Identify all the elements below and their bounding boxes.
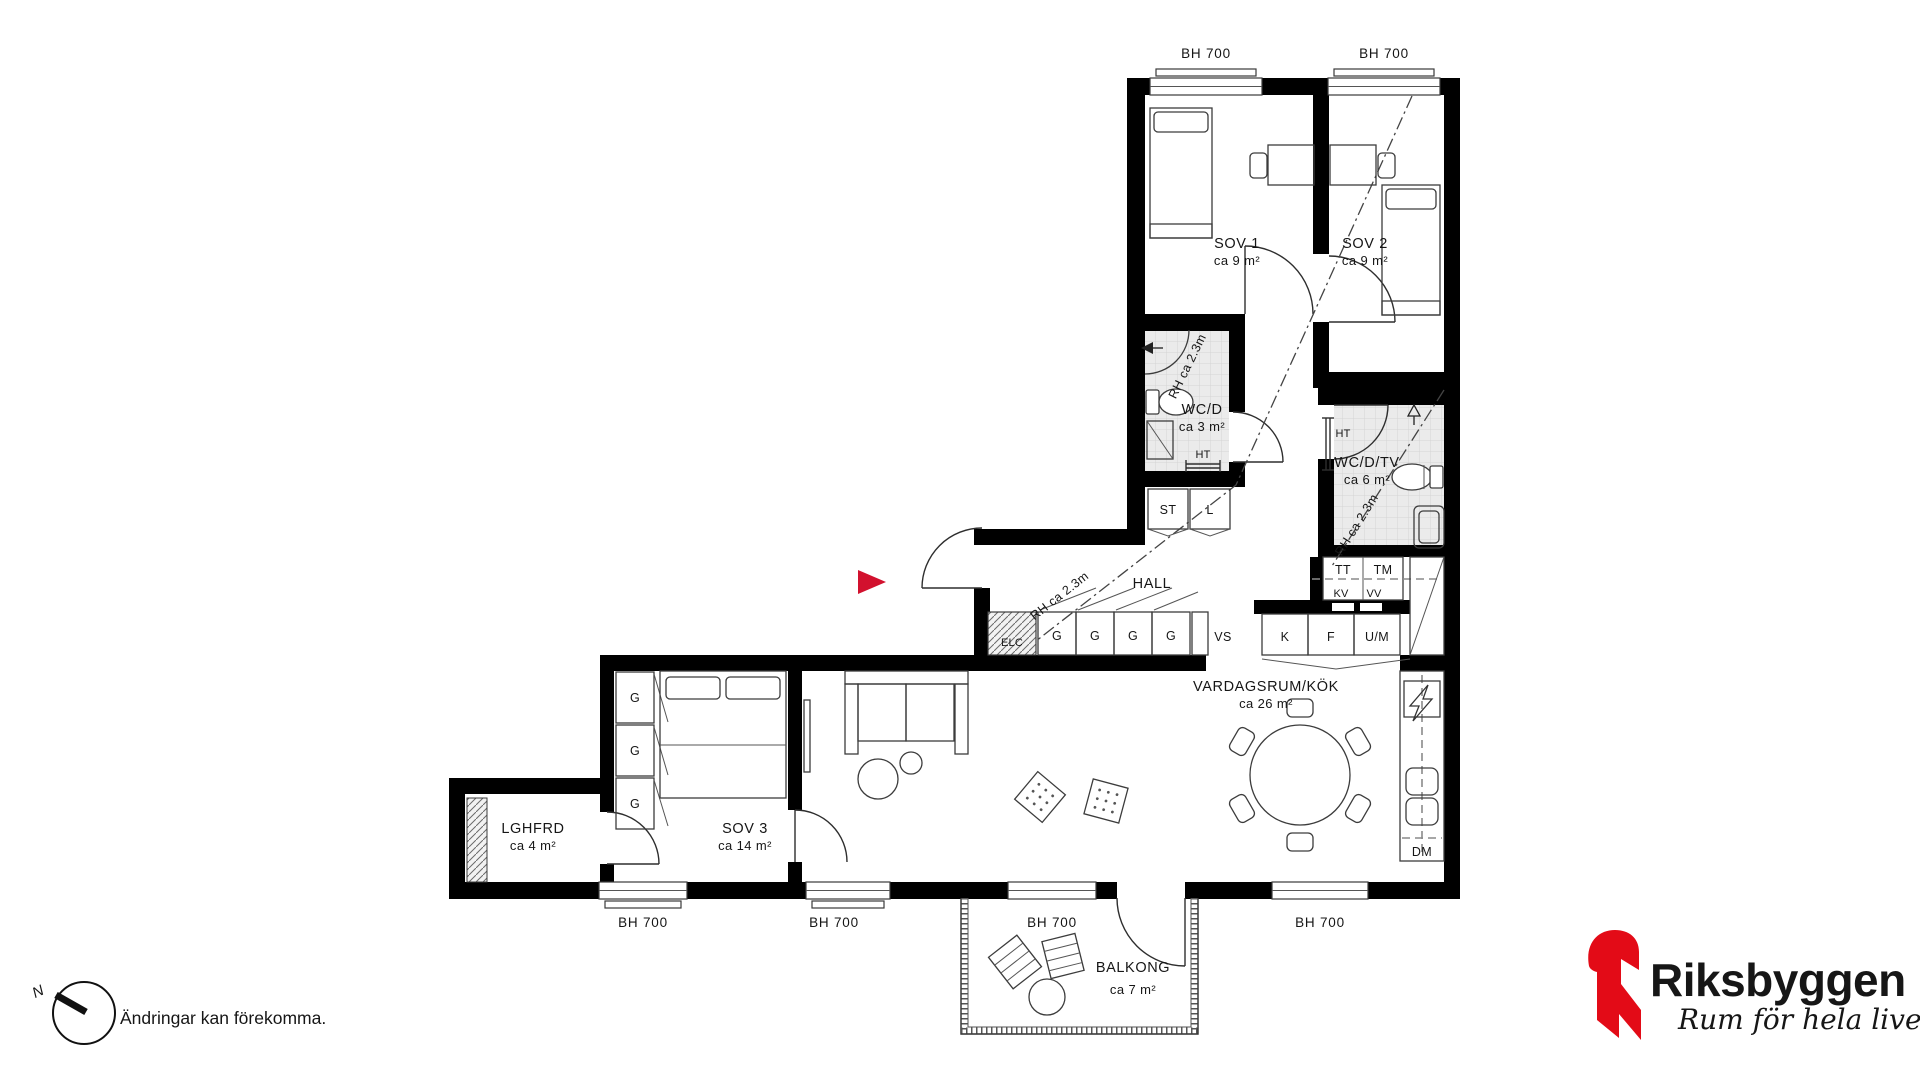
room-area-sov1: ca 9 m² xyxy=(1214,253,1260,268)
room-label-balkong: BALKONG xyxy=(1096,960,1170,976)
room-area-wcd: ca 3 m² xyxy=(1179,419,1225,434)
sov1-bed xyxy=(1150,108,1212,238)
stove xyxy=(1404,681,1440,717)
label-k: K xyxy=(1281,630,1290,644)
riksbyggen-logo: Riksbyggen Rum för hela livet xyxy=(1588,930,1920,1040)
bh700-bottom-2: BH 700 xyxy=(809,915,859,930)
walls xyxy=(449,78,1460,899)
label-elc: ELC xyxy=(1001,637,1023,649)
sov3-door xyxy=(795,810,847,862)
side-table xyxy=(900,752,922,774)
label-g: G xyxy=(630,691,640,705)
riksbyggen-logo-mark xyxy=(1588,930,1641,1040)
window-bottom-2 xyxy=(806,882,890,908)
bh700-bottom-1: BH 700 xyxy=(618,915,668,930)
disclaimer-text: Ändringar kan förekomma. xyxy=(120,1008,326,1028)
label-f: F xyxy=(1327,630,1335,644)
label-ht: HT xyxy=(1335,428,1350,440)
rh-label-hall: RH ca 2.3m xyxy=(1028,569,1092,623)
room-label-wcd: WC/D xyxy=(1181,402,1222,418)
compass: N xyxy=(30,982,115,1044)
window-bottom-3 xyxy=(1008,882,1096,899)
dining-set xyxy=(1228,699,1373,851)
armchair xyxy=(1015,772,1066,823)
label-um: U/M xyxy=(1365,630,1389,644)
label-st: ST xyxy=(1160,503,1177,517)
room-label-lghfrd: LGHFRD xyxy=(501,821,564,837)
balcony-chair xyxy=(989,935,1042,989)
sov2-bed xyxy=(1382,185,1440,315)
window-bottom-1 xyxy=(599,882,687,908)
wall-slot xyxy=(1360,603,1382,611)
label-kv: KV xyxy=(1333,588,1349,600)
lghfrd-door xyxy=(607,812,659,864)
window-top-1 xyxy=(1150,69,1262,95)
vs-shaft xyxy=(1192,612,1208,655)
room-area-lghfrd: ca 4 m² xyxy=(510,838,556,853)
armchair xyxy=(1084,779,1128,823)
bh700-top-1: BH 700 xyxy=(1181,46,1231,61)
north-label: N xyxy=(30,982,47,1002)
label-g: G xyxy=(630,797,640,811)
label-tm: TM xyxy=(1374,563,1393,577)
label-tt: TT xyxy=(1335,563,1351,577)
room-label-wcdtv: WC/D/TV xyxy=(1334,455,1399,471)
label-dm: DM xyxy=(1412,845,1432,859)
bh700-bottom-4: BH 700 xyxy=(1295,915,1345,930)
bh700-bottom-3: BH 700 xyxy=(1027,915,1077,930)
room-area-wcdtv: ca 6 m² xyxy=(1344,472,1390,487)
room-label-sov1: SOV 1 xyxy=(1214,236,1260,252)
window-top-2 xyxy=(1328,69,1440,95)
coffee-table xyxy=(858,759,898,799)
label-vv: VV xyxy=(1366,588,1382,600)
label-g: G xyxy=(630,744,640,758)
lghfrd-shaft xyxy=(467,798,487,882)
tv-bench xyxy=(804,700,810,772)
sov2-desk xyxy=(1330,145,1395,185)
room-area-sov3: ca 14 m² xyxy=(718,838,772,853)
bh700-top-2: BH 700 xyxy=(1359,46,1409,61)
label-g: G xyxy=(1090,629,1100,643)
riksbyggen-tagline: Rum för hela livet xyxy=(1677,1003,1920,1036)
room-area-sov2: ca 9 m² xyxy=(1342,253,1388,268)
floorplan-drawing: SOV 1 ca 9 m² SOV 2 ca 9 m² WC/D ca 3 m²… xyxy=(0,0,1920,1080)
closets xyxy=(467,489,1230,882)
label-vs: VS xyxy=(1214,630,1231,644)
room-label-sov2: SOV 2 xyxy=(1342,236,1388,252)
window-bottom-4 xyxy=(1272,882,1368,899)
balcony-table xyxy=(1029,979,1065,1015)
balcony-door xyxy=(1117,898,1185,966)
room-label-sov3: SOV 3 xyxy=(722,821,768,837)
lightning-icon xyxy=(1410,685,1432,721)
wall-slot xyxy=(1332,603,1354,611)
label-l: L xyxy=(1206,503,1213,517)
room-area-vardagsrum: ca 26 m² xyxy=(1239,696,1293,711)
label-g: G xyxy=(1128,629,1138,643)
toilet-tank xyxy=(1430,466,1443,488)
entry-door xyxy=(922,528,982,588)
toilet-tank xyxy=(1146,390,1159,414)
sov3-bed xyxy=(660,671,786,798)
sov1-desk xyxy=(1250,145,1314,185)
label-g: G xyxy=(1052,629,1062,643)
riksbyggen-brand-text: Riksbyggen xyxy=(1650,954,1906,1006)
balcony-chair xyxy=(1042,933,1084,978)
sofa xyxy=(845,671,968,754)
room-label-hall: HALL xyxy=(1133,576,1172,592)
floorplan-page: SOV 1 ca 9 m² SOV 2 ca 9 m² WC/D ca 3 m²… xyxy=(0,0,1920,1080)
compass-needle-icon xyxy=(56,995,86,1012)
entrance-marker xyxy=(858,570,886,594)
room-area-balkong: ca 7 m² xyxy=(1110,982,1156,997)
wcd-door xyxy=(1233,412,1283,462)
label-ht: HT xyxy=(1195,449,1210,461)
label-g: G xyxy=(1166,629,1176,643)
room-label-vardagsrum: VARDAGSRUM/KÖK xyxy=(1193,677,1339,695)
